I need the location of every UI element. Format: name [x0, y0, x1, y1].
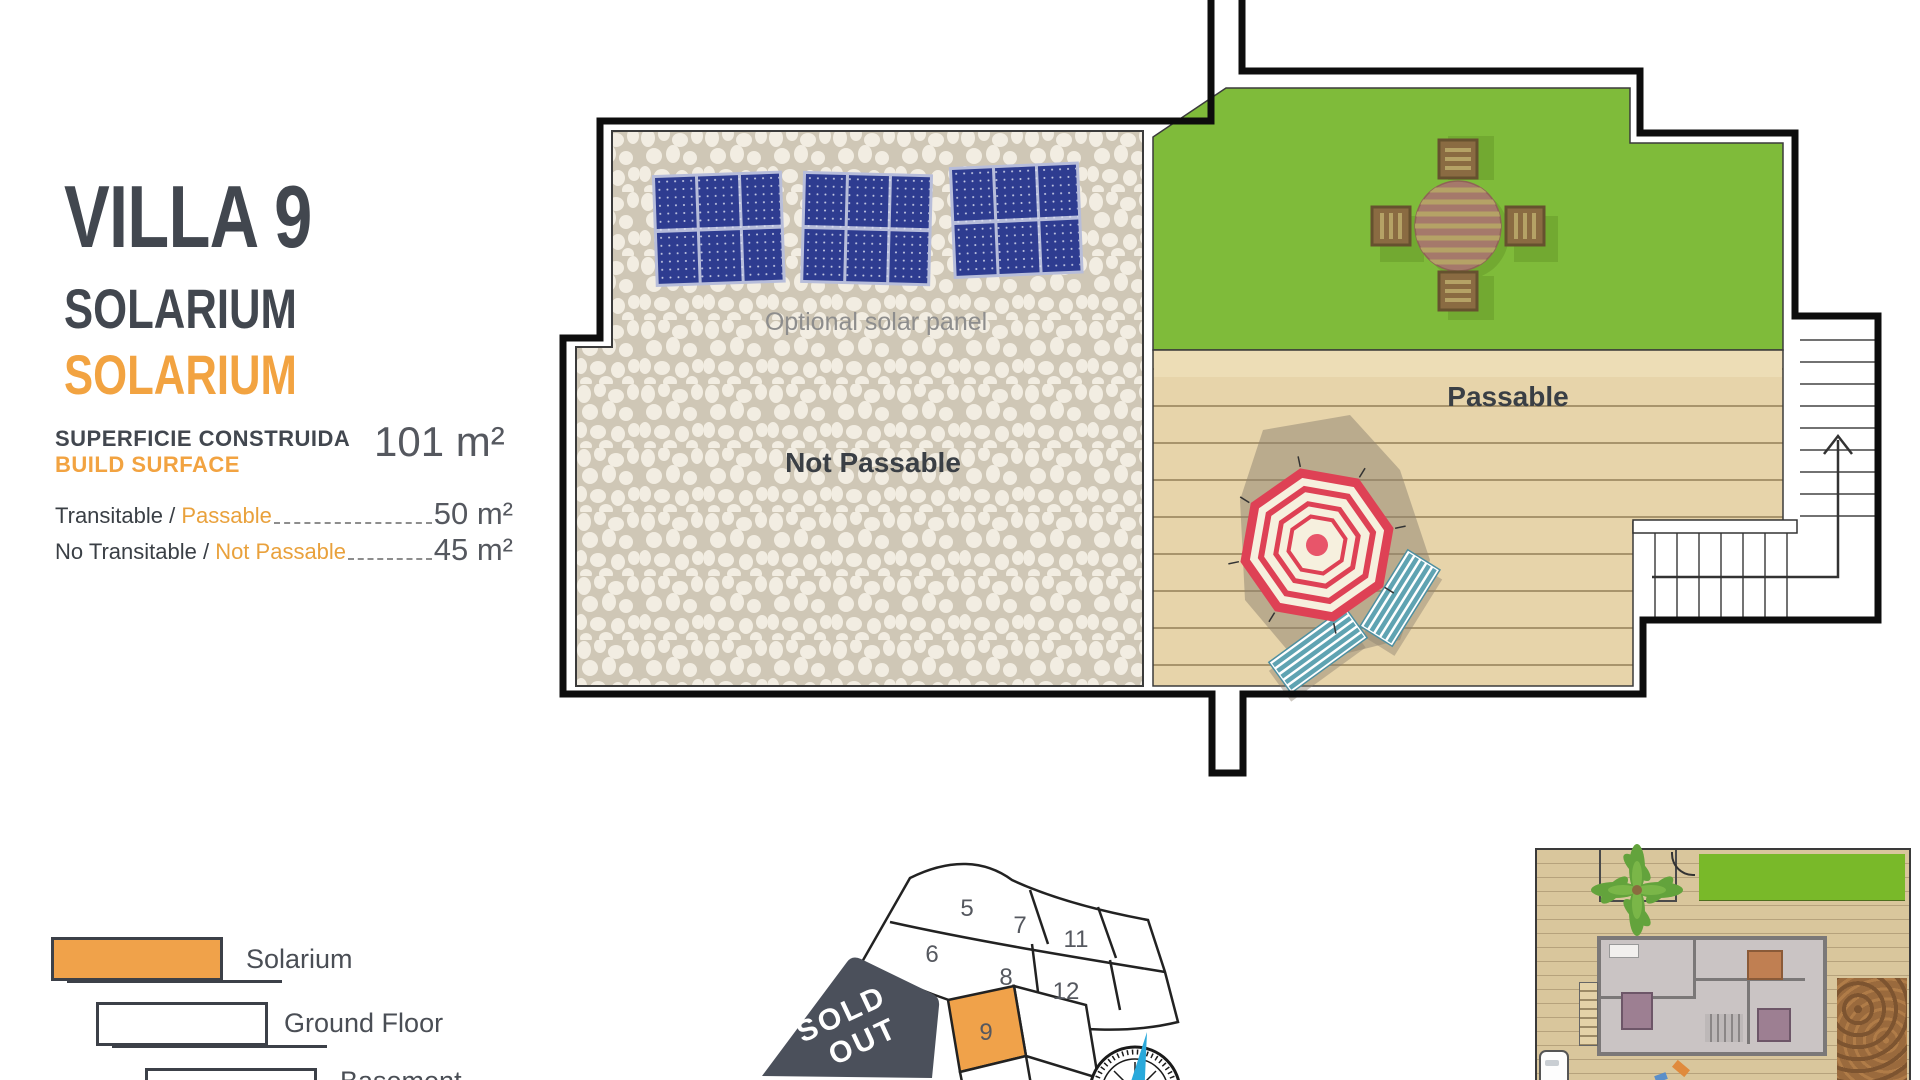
- deck-plank-highlight: [1154, 351, 1782, 377]
- compass-icon: [1090, 1032, 1180, 1080]
- garden-chair-icon: [1372, 207, 1410, 245]
- plot-12-label: 12: [1053, 978, 1080, 1005]
- solar-panel-icon: [800, 171, 933, 286]
- legend-divider: [67, 980, 282, 983]
- interior-wall: [1747, 978, 1750, 1044]
- miniplan-house: [1597, 936, 1827, 1056]
- solar-panel-note: Optional solar panel: [765, 308, 987, 336]
- plot-11-label: 11: [1064, 926, 1089, 953]
- deck-steps-icon: [1579, 982, 1598, 1046]
- stair-treads-bottom-flight: [1655, 533, 1787, 617]
- plot-7-label: 7: [1013, 912, 1026, 939]
- legend-label-basement: Basement: [340, 1066, 462, 1080]
- legend-swatch-solarium: [51, 937, 223, 981]
- passable-label: Passable: [1447, 381, 1568, 412]
- plot-9-label: 9: [979, 1019, 992, 1046]
- legend-label-solarium: Solarium: [246, 944, 353, 975]
- solar-panel-icon: [949, 161, 1084, 279]
- site-plan: SOLD OUT 5 7 11 6 8 12 9 10: [700, 850, 1260, 1080]
- car-windshield: [1545, 1060, 1559, 1066]
- garden-chair-icon: [1439, 140, 1477, 178]
- garden-dirt-patch: [1837, 978, 1907, 1080]
- bed-icon: [1747, 950, 1783, 980]
- car-icon: [1539, 1050, 1569, 1080]
- lounger-icon: [1672, 1060, 1690, 1077]
- interior-stairs-icon: [1705, 1014, 1743, 1042]
- solar-panel-icon: [652, 171, 786, 287]
- miniplan-lawn: [1699, 854, 1905, 901]
- pool-toy-icon: [1654, 1072, 1668, 1080]
- bathroom-fixture: [1609, 944, 1639, 958]
- bed-icon: [1757, 1008, 1791, 1042]
- interior-wall: [1693, 940, 1696, 998]
- legend-swatch-basement: [145, 1068, 317, 1080]
- plot-8-label: 8: [999, 964, 1012, 991]
- garden-chair-icon: [1506, 207, 1544, 245]
- ground-floor-miniplan: [1535, 848, 1911, 1080]
- plot-5-label: 5: [960, 895, 973, 922]
- not-passable-label: Not Passable: [785, 447, 961, 478]
- plot-6-label: 6: [925, 941, 938, 968]
- legend-swatch-ground-floor: [96, 1002, 268, 1046]
- bed-icon: [1621, 992, 1653, 1030]
- solarium-plan: Not Passable Passable Optional solar pan…: [0, 0, 1920, 810]
- solar-panels: [652, 161, 1084, 287]
- floorplan-page: VILLA 9 SOLARIUM SOLARIUM SUPERFICIE CON…: [0, 0, 1920, 1080]
- stair-landing: [1633, 520, 1797, 533]
- legend-divider: [112, 1045, 327, 1048]
- legend-label-ground-floor: Ground Floor: [284, 1008, 443, 1039]
- garden-chair-icon: [1439, 272, 1477, 310]
